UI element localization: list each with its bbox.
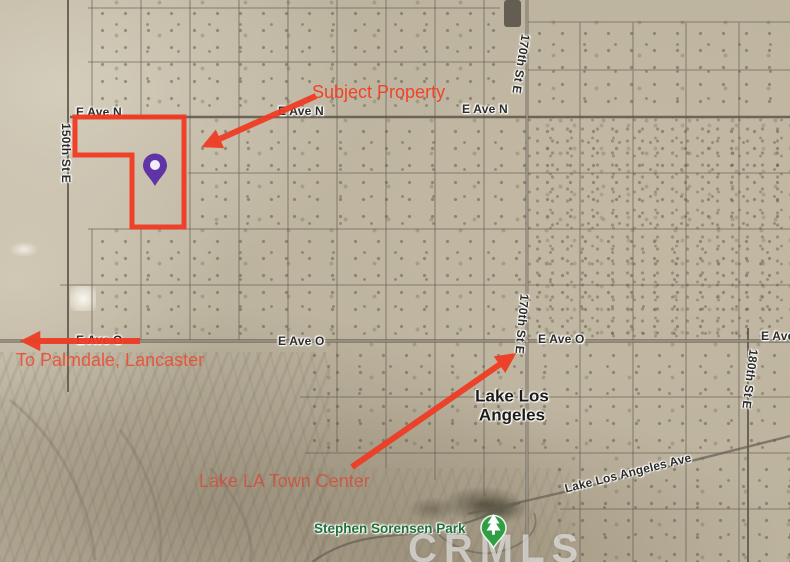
subject-property-arrow (206, 96, 316, 145)
town-center-label: Lake LA Town Center (199, 471, 370, 492)
subject-property-label: Subject Property (312, 82, 445, 103)
subject-property-outline (75, 117, 184, 227)
satellite-map: E Ave N E Ave N E Ave N E Ave O E Ave O … (0, 0, 790, 562)
to-palmdale-label: To Palmdale, Lancaster (16, 350, 204, 371)
property-pin-icon (143, 154, 167, 187)
town-center-arrow (352, 356, 512, 467)
park-pin-icon (481, 514, 506, 548)
